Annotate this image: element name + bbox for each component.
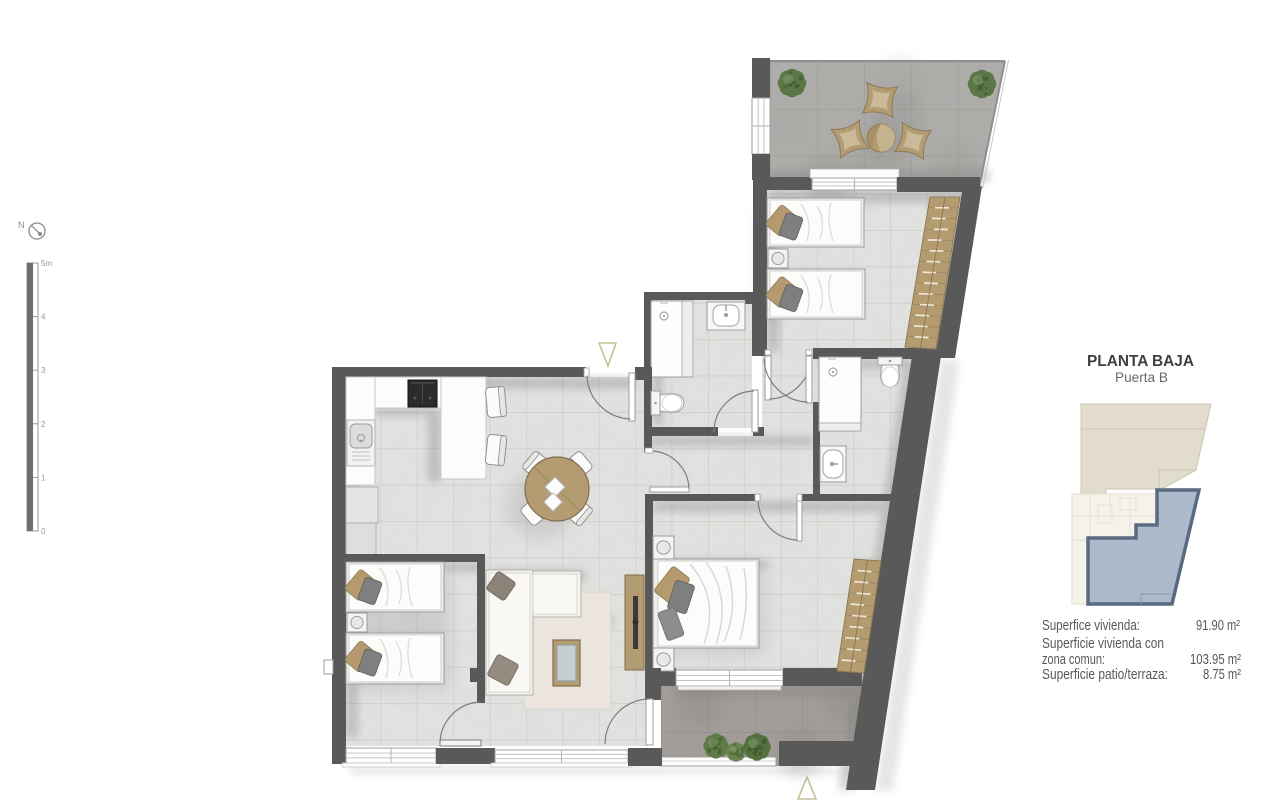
svg-text:3: 3: [41, 366, 46, 375]
svg-text:Puerta B: Puerta B: [1115, 369, 1168, 385]
svg-text:N: N: [18, 220, 25, 230]
svg-text:2: 2: [41, 420, 46, 429]
svg-text:zona comun:: zona comun:: [1042, 652, 1105, 668]
svg-text:103.95 m²: 103.95 m²: [1190, 652, 1241, 668]
svg-text:Superfice vivienda:: Superfice vivienda:: [1042, 618, 1140, 634]
svg-text:0: 0: [41, 527, 46, 536]
svg-text:1: 1: [41, 473, 46, 482]
svg-text:8.75 m²: 8.75 m²: [1203, 667, 1241, 683]
svg-text:Superficie patio/terraza:: Superficie patio/terraza:: [1042, 667, 1168, 683]
svg-text:5m: 5m: [41, 259, 52, 268]
svg-text:Superficie vivienda con: Superficie vivienda con: [1042, 636, 1164, 652]
svg-text:91.90 m²: 91.90 m²: [1196, 618, 1240, 634]
svg-text:4: 4: [41, 313, 46, 322]
svg-text:PLANTA BAJA: PLANTA BAJA: [1087, 353, 1194, 370]
